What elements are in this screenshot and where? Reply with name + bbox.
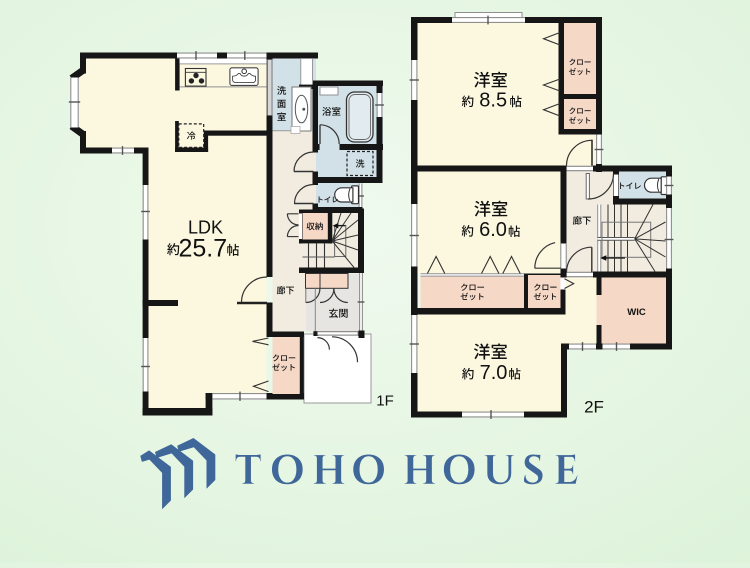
svg-text:1F: 1F	[376, 393, 394, 410]
svg-text:WIC: WIC	[627, 307, 646, 318]
svg-text:8.5: 8.5	[479, 90, 507, 112]
svg-text:2F: 2F	[584, 397, 604, 416]
svg-text:7.0: 7.0	[480, 362, 508, 384]
svg-text:6.0: 6.0	[479, 219, 507, 241]
svg-text:25.7: 25.7	[178, 234, 227, 262]
